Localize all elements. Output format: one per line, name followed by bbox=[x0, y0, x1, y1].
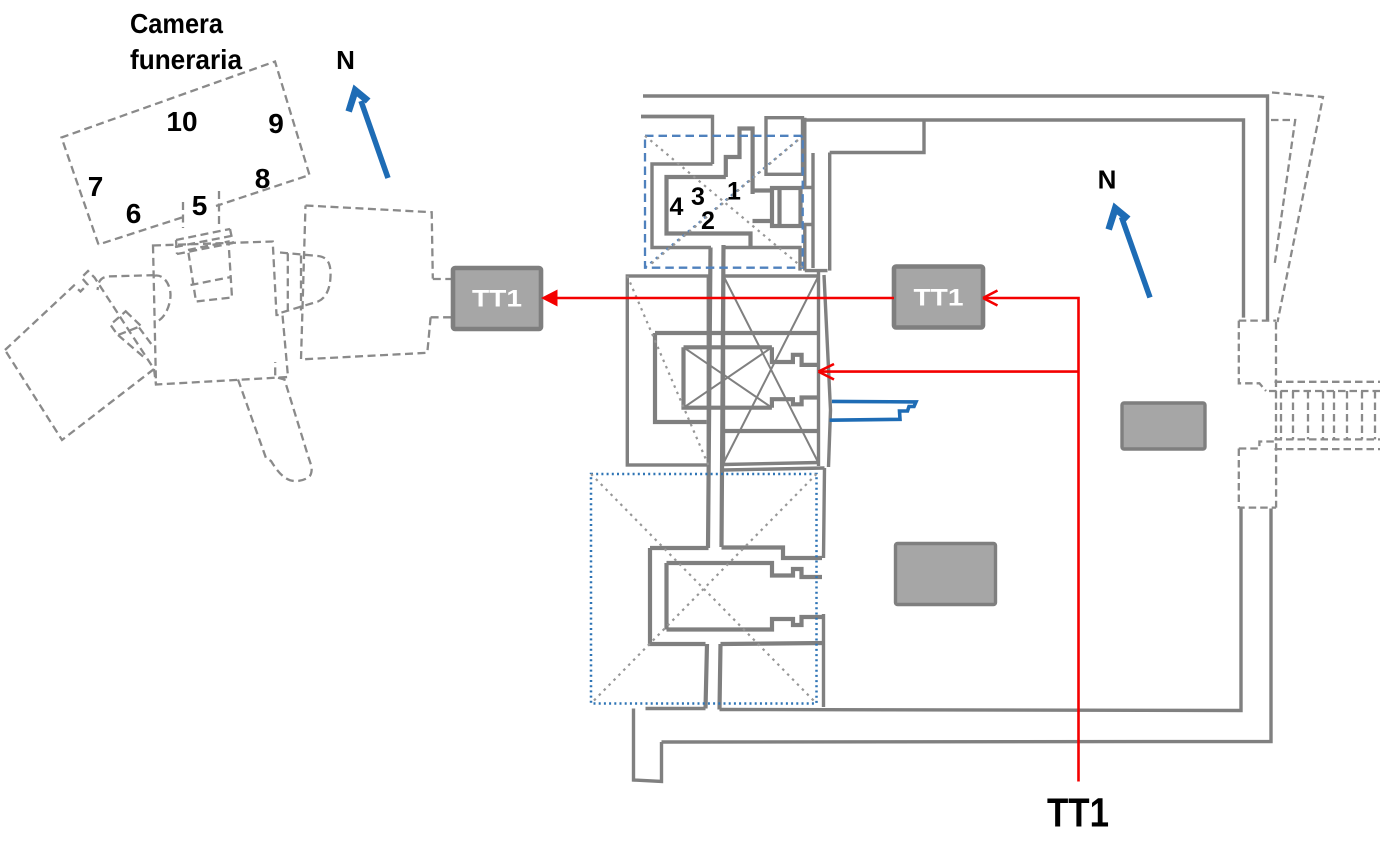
svg-text:Camera: Camera bbox=[130, 8, 223, 39]
svg-text:2: 2 bbox=[701, 207, 715, 235]
svg-text:9: 9 bbox=[268, 108, 284, 139]
svg-text:4: 4 bbox=[670, 193, 684, 221]
svg-text:funeraria: funeraria bbox=[130, 44, 242, 75]
svg-text:TT1: TT1 bbox=[914, 285, 964, 312]
svg-text:N: N bbox=[1098, 165, 1117, 195]
svg-text:N: N bbox=[336, 45, 355, 75]
svg-text:10: 10 bbox=[166, 106, 197, 137]
svg-text:8: 8 bbox=[255, 163, 271, 194]
svg-text:6: 6 bbox=[126, 198, 142, 229]
svg-text:1: 1 bbox=[727, 178, 741, 206]
svg-text:7: 7 bbox=[88, 171, 104, 202]
svg-text:TT1: TT1 bbox=[472, 286, 522, 313]
svg-text:5: 5 bbox=[192, 190, 208, 221]
svg-text:TT1: TT1 bbox=[1047, 790, 1109, 836]
